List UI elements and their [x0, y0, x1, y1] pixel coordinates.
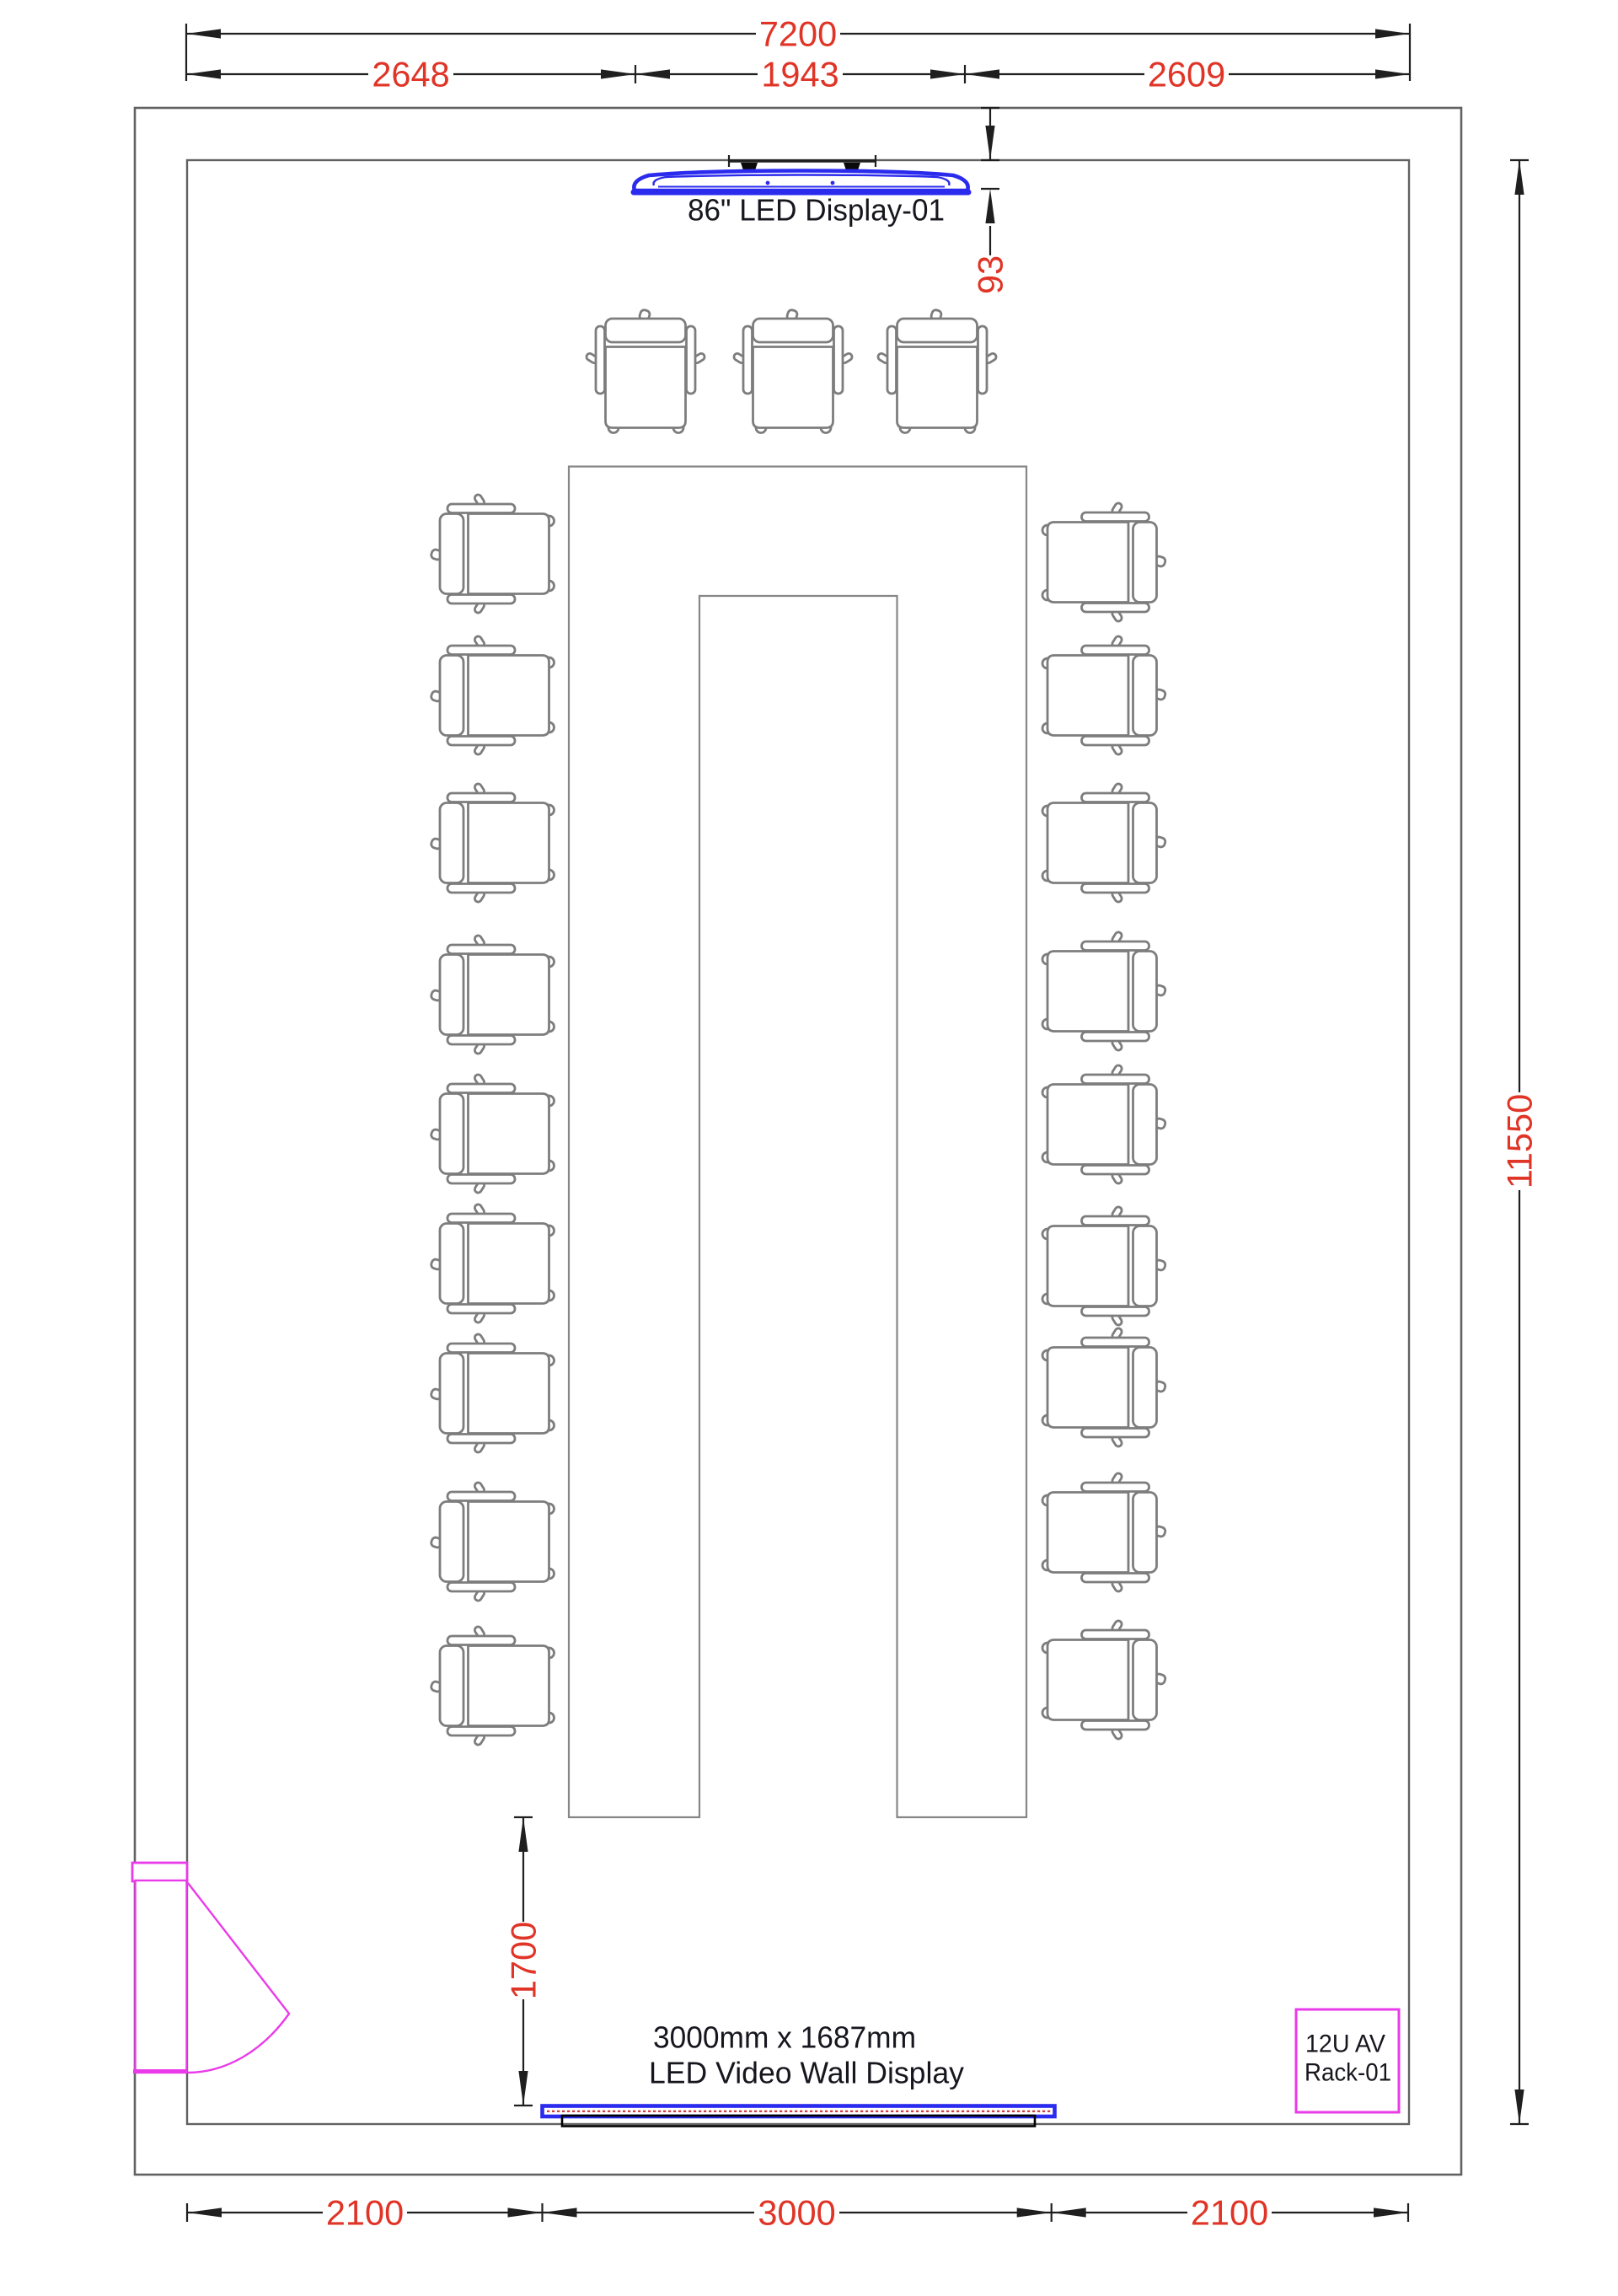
svg-text:2100: 2100: [1191, 2193, 1268, 2233]
svg-text:11550: 11550: [1500, 1094, 1540, 1188]
svg-text:3000mm x 1687mm: 3000mm x 1687mm: [653, 2020, 916, 2055]
svg-text:3000: 3000: [758, 2193, 835, 2233]
svg-text:LED Video Wall Display: LED Video Wall Display: [649, 2056, 964, 2090]
svg-text:2100: 2100: [326, 2193, 404, 2233]
svg-text:7200: 7200: [759, 14, 837, 54]
svg-text:86" LED Display-01: 86" LED Display-01: [688, 193, 945, 228]
svg-text:2609: 2609: [1148, 55, 1225, 94]
svg-text:2648: 2648: [372, 55, 449, 94]
svg-text:12U AV: 12U AV: [1305, 2030, 1385, 2058]
svg-text:1943: 1943: [761, 55, 838, 94]
svg-text:1700: 1700: [504, 1922, 544, 1999]
svg-text:93: 93: [971, 255, 1010, 294]
svg-text:Rack-01: Rack-01: [1305, 2059, 1391, 2087]
